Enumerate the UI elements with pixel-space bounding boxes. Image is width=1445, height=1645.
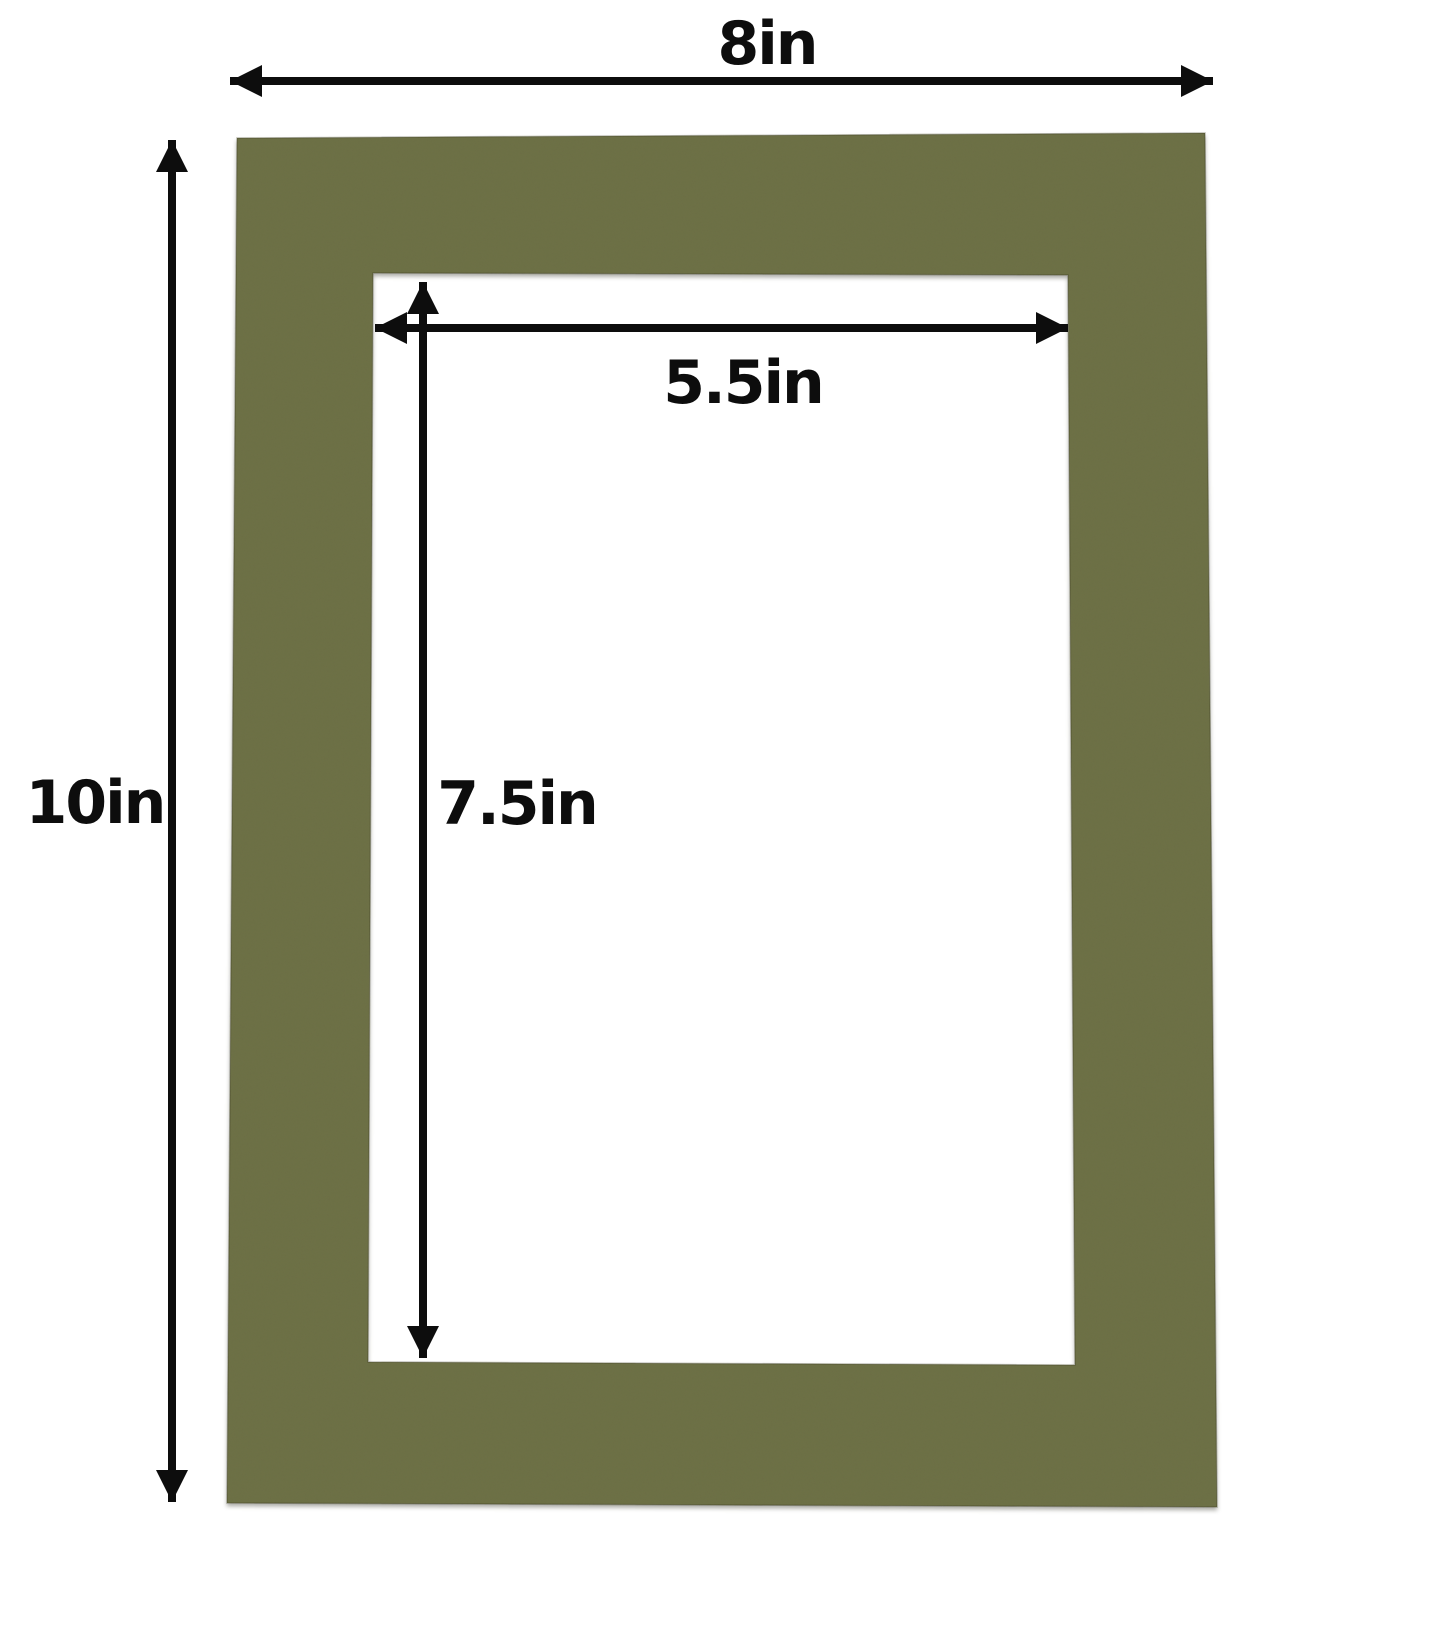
outer-width-left-arrowhead	[230, 65, 262, 97]
mat-board-shape	[227, 133, 1217, 1507]
diagram-canvas: 8in 10in 5.5in 7.5in	[0, 0, 1445, 1645]
opening-width-right-arrowhead	[1036, 312, 1068, 344]
opening-height-arrow	[407, 282, 439, 1358]
opening-width-label: 5.5in	[663, 348, 823, 418]
outer-height-top-arrowhead	[156, 140, 188, 172]
mat-board	[227, 133, 1217, 1507]
opening-height-top-arrowhead	[407, 282, 439, 314]
opening-width-left-arrowhead	[375, 312, 407, 344]
outer-height-label: 10in	[26, 768, 165, 838]
mat-dimension-diagram: 8in 10in 5.5in 7.5in	[0, 0, 1445, 1645]
outer-width-label: 8in	[717, 9, 816, 79]
opening-width-arrow	[375, 312, 1068, 344]
opening-height-bottom-arrowhead	[407, 1326, 439, 1358]
opening-height-label: 7.5in	[437, 769, 597, 839]
outer-height-bottom-arrowhead	[156, 1470, 188, 1502]
outer-width-right-arrowhead	[1181, 65, 1213, 97]
